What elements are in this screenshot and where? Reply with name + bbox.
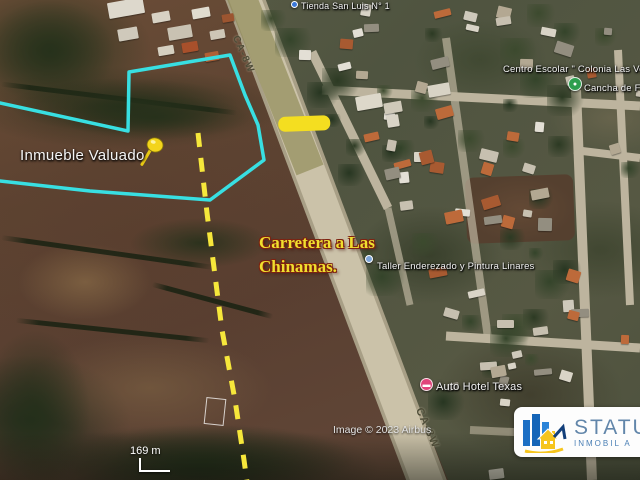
tree bbox=[428, 390, 465, 420]
sports-field-icon[interactable]: ● bbox=[568, 77, 582, 91]
tree bbox=[503, 99, 520, 112]
logo-buildings-house-icon bbox=[521, 411, 567, 453]
poi-label-auto-hotel[interactable]: Auto Hotel Texas bbox=[436, 381, 522, 393]
imagery-attribution: Image © 2023 Airbus bbox=[333, 424, 431, 436]
agency-logo: STATU INMOBIL A bbox=[514, 407, 640, 457]
tree-cluster bbox=[55, 425, 355, 480]
tree bbox=[338, 164, 365, 186]
logo-subtitle: INMOBIL A bbox=[574, 439, 640, 448]
house-roof bbox=[299, 50, 311, 61]
house-roof bbox=[538, 218, 552, 231]
road-annotation-label: Carretera a Las Chinamas. bbox=[259, 231, 375, 279]
scale-bar bbox=[139, 458, 170, 472]
satellite-map: Tienda San Luis N° 1 Centro Escolar " Co… bbox=[0, 0, 640, 480]
house-roof bbox=[340, 39, 354, 50]
house-roof bbox=[497, 320, 514, 328]
logo-text: STATU INMOBIL A bbox=[574, 417, 640, 448]
house-roof bbox=[535, 122, 545, 133]
poi-label-taller[interactable]: Taller Enderezado y Pintura Linares bbox=[377, 261, 535, 272]
tree bbox=[529, 248, 544, 260]
poi-label-centro-escolar[interactable]: Centro Escolar " Colonia Las Ve bbox=[503, 64, 640, 75]
tree bbox=[325, 114, 342, 128]
tree bbox=[527, 4, 557, 28]
tree bbox=[548, 136, 575, 157]
logo-brand-name: STATU bbox=[574, 417, 640, 439]
tree bbox=[621, 162, 640, 178]
house-roof bbox=[604, 27, 613, 35]
tree bbox=[425, 28, 442, 42]
house-roof bbox=[399, 200, 413, 211]
poi-label-tienda[interactable]: Tienda San Luis N° 1 bbox=[301, 1, 390, 11]
house-roof bbox=[386, 114, 399, 128]
house-roof bbox=[567, 309, 580, 320]
tree bbox=[500, 229, 527, 250]
place-dot-icon[interactable] bbox=[291, 1, 298, 8]
tree bbox=[412, 233, 440, 256]
house-roof bbox=[363, 24, 378, 33]
house-roof bbox=[489, 469, 505, 480]
tree bbox=[490, 326, 529, 357]
tree bbox=[261, 10, 287, 31]
structure-outline bbox=[204, 397, 227, 426]
hotel-glyph: ▬ bbox=[423, 380, 431, 389]
tree-cluster bbox=[60, 95, 250, 140]
scale-label: 169 m bbox=[130, 445, 161, 457]
road-annotation-line1: Carretera a Las bbox=[259, 231, 375, 255]
road-annotation-line2: Chinamas. bbox=[259, 255, 375, 279]
hotel-icon[interactable]: ▬ bbox=[420, 378, 433, 391]
parcel-annotation-label: Inmueble Valuado bbox=[20, 147, 145, 164]
tree bbox=[503, 139, 526, 158]
sports-glyph: ● bbox=[573, 81, 577, 88]
house-roof bbox=[621, 335, 630, 344]
tree bbox=[462, 315, 483, 332]
house-roof bbox=[356, 71, 368, 80]
poi-label-cancha[interactable]: Cancha de F bbox=[584, 83, 640, 94]
tree-cluster bbox=[130, 218, 270, 268]
house-roof bbox=[500, 399, 510, 407]
